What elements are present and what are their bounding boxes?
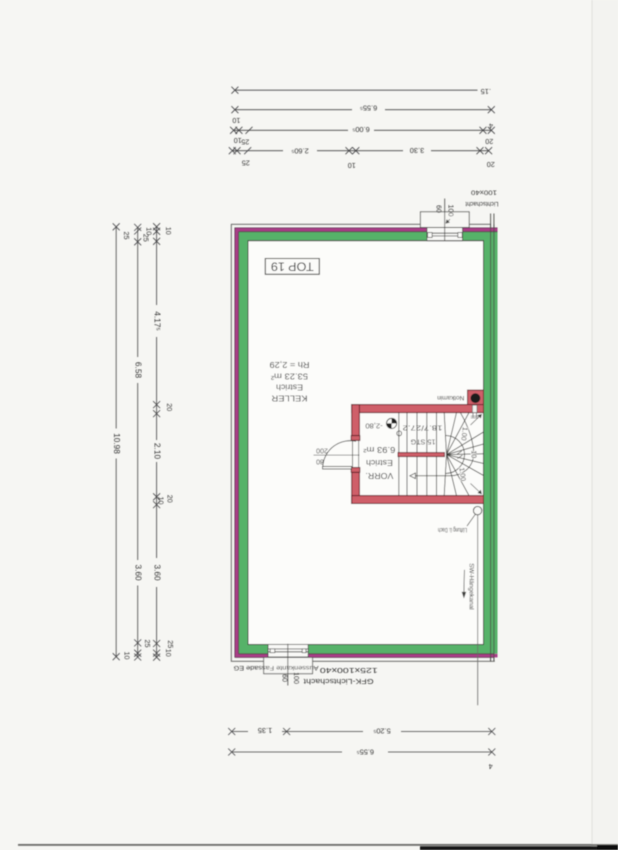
svg-text:Lüftung ü. Dach: Lüftung ü. Dach [438,526,467,533]
svg-text:25: 25 [242,159,250,168]
svg-text:100x40: 100x40 [471,188,497,195]
svg-text:6.55⁵: 6.55⁵ [360,104,377,113]
svg-text:60: 60 [435,205,444,213]
svg-text:Estrich: Estrich [366,458,393,467]
svg-text:80: 80 [316,458,324,465]
svg-text:6.93 m²: 6.93 m² [363,445,395,454]
svg-text:25: 25 [241,138,249,147]
svg-text:3.60: 3.60 [152,565,162,582]
svg-text:Estrich: Estrich [276,382,303,392]
svg-text:Lichtschacht: Lichtschacht [465,200,498,207]
svg-text:25: 25 [143,640,152,648]
svg-text:15 STG: 15 STG [410,438,435,447]
svg-text:4: 4 [489,762,493,771]
svg-text:10: 10 [156,497,165,505]
svg-text:SW-Hängekanal: SW-Hängekanal [467,563,474,609]
svg-text:10: 10 [234,136,242,145]
svg-text:VORR.: VORR. [365,471,393,480]
svg-text:125x100x40: 125x100x40 [320,666,378,675]
svg-text:1.35: 1.35 [258,726,272,735]
svg-text:10: 10 [469,450,476,458]
svg-text:GFK-Lichtschacht: GFK-Lichtschacht [304,677,374,686]
svg-text:20: 20 [165,495,174,503]
svg-text:200: 200 [316,446,328,453]
svg-text:20: 20 [485,137,493,146]
svg-text:Aussenkante Fassade EG: Aussenkante Fassade EG [234,664,319,671]
svg-text:KELLER: KELLER [272,394,308,404]
svg-text:18.7/27.2: 18.7/27.2 [403,424,443,433]
svg-text:100: 100 [447,205,456,217]
svg-text:10: 10 [164,649,173,657]
svg-text:4.17⁵: 4.17⁵ [152,311,162,331]
svg-text:10.98: 10.98 [112,433,122,454]
svg-text:20: 20 [487,160,495,169]
svg-text:25: 25 [166,640,175,648]
svg-text:100: 100 [292,672,301,684]
svg-text:25: 25 [122,232,131,240]
svg-text:6.58: 6.58 [134,362,144,379]
svg-text:20: 20 [165,403,174,411]
svg-text:60: 60 [280,674,289,682]
svg-text:3.30: 3.30 [410,146,424,155]
svg-text:2.60⁵: 2.60⁵ [291,146,308,155]
svg-text:10: 10 [122,652,131,660]
svg-text:10: 10 [348,161,356,170]
svg-text:.15: .15 [481,87,491,96]
svg-text:4: 4 [489,121,493,130]
svg-text:2.10: 2.10 [152,443,162,460]
svg-text:53.23 m²: 53.23 m² [271,372,308,382]
svg-text:Rh = 2,29: Rh = 2,29 [269,360,309,370]
svg-text:3.60: 3.60 [134,565,144,582]
svg-text:-2,80: -2,80 [365,421,382,430]
svg-text:5.20⁵: 5.20⁵ [373,727,390,736]
svg-text:10: 10 [232,116,240,125]
svg-text:10: 10 [164,227,173,235]
svg-text:6.00⁵: 6.00⁵ [352,125,369,134]
svg-text:6.55⁵: 6.55⁵ [357,747,374,756]
svg-text:TOP 19: TOP 19 [270,259,313,273]
svg-text:25: 25 [142,234,151,242]
svg-text:Notkamin: Notkamin [437,394,465,401]
